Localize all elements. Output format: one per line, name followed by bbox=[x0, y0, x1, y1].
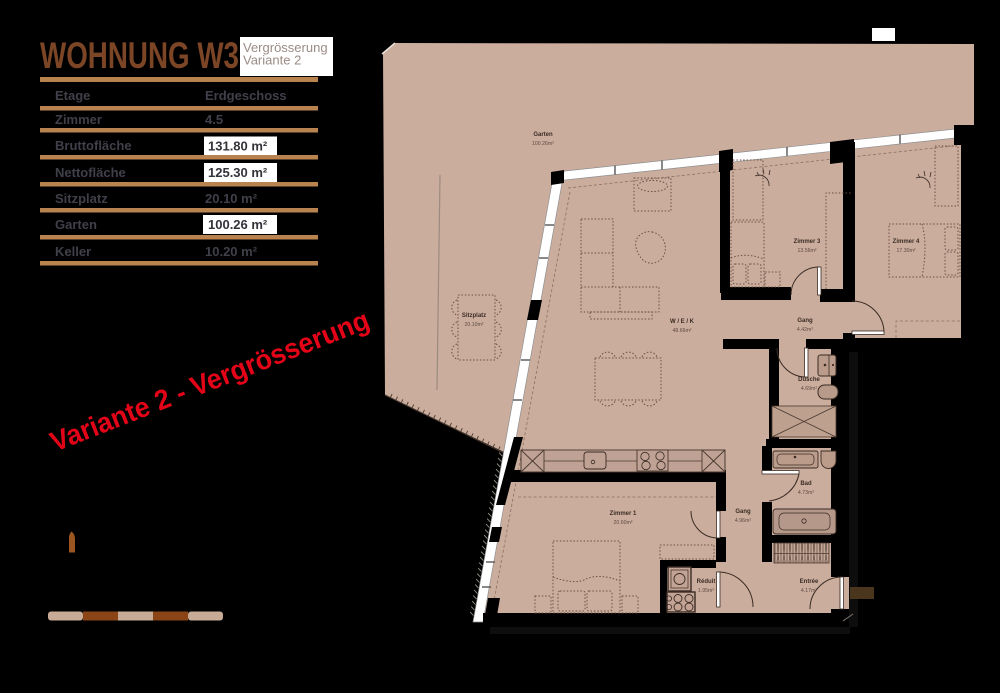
svg-text:4.42m²: 4.42m² bbox=[797, 327, 813, 333]
svg-text:WOHNUNG W3: WOHNUNG W3 bbox=[40, 35, 239, 76]
svg-text:4.73m²: 4.73m² bbox=[798, 490, 814, 496]
svg-text:Zimmer 1: Zimmer 1 bbox=[610, 511, 637, 517]
svg-text:Zimmer 3: Zimmer 3 bbox=[794, 239, 821, 245]
svg-text:100.26 m²: 100.26 m² bbox=[208, 217, 268, 232]
svg-text:Nettofläche: Nettofläche bbox=[55, 165, 126, 180]
svg-text:4.96m²: 4.96m² bbox=[735, 518, 751, 524]
svg-text:Zimmer: Zimmer bbox=[55, 112, 102, 127]
svg-text:Entrée: Entrée bbox=[800, 579, 819, 585]
svg-text:48.66m²: 48.66m² bbox=[672, 328, 691, 334]
svg-text:Dusche: Dusche bbox=[798, 377, 820, 383]
svg-text:17.30m²: 17.30m² bbox=[896, 248, 915, 254]
svg-text:20.10m²: 20.10m² bbox=[464, 322, 483, 328]
svg-text:Gang: Gang bbox=[797, 318, 813, 324]
svg-text:4.69m²: 4.69m² bbox=[801, 386, 817, 392]
svg-text:Variante 2: Variante 2 bbox=[243, 53, 301, 68]
svg-text:Gang: Gang bbox=[735, 509, 751, 515]
svg-text:100.26m²: 100.26m² bbox=[532, 141, 554, 147]
svg-text:4.5: 4.5 bbox=[205, 112, 223, 127]
svg-text:131.80 m²: 131.80 m² bbox=[208, 139, 268, 154]
svg-text:W / E / K: W / E / K bbox=[670, 319, 695, 325]
svg-text:Etage: Etage bbox=[55, 88, 90, 103]
svg-text:13.56m²: 13.56m² bbox=[797, 248, 816, 254]
svg-text:Sitzplatz: Sitzplatz bbox=[55, 191, 108, 206]
svg-text:Garten: Garten bbox=[533, 132, 553, 138]
svg-text:125.30 m²: 125.30 m² bbox=[208, 165, 268, 180]
svg-text:Garten: Garten bbox=[55, 217, 97, 232]
svg-text:Sitzplatz: Sitzplatz bbox=[462, 313, 486, 319]
svg-text:Réduit: Réduit bbox=[697, 579, 716, 585]
svg-text:1.95m²: 1.95m² bbox=[698, 588, 714, 594]
svg-text:Zimmer 4: Zimmer 4 bbox=[893, 239, 920, 245]
svg-text:20.60m²: 20.60m² bbox=[613, 520, 632, 526]
svg-text:20.10 m²: 20.10 m² bbox=[205, 191, 258, 206]
svg-text:4.17m²: 4.17m² bbox=[801, 588, 817, 594]
svg-text:Erdgeschoss: Erdgeschoss bbox=[205, 88, 287, 103]
svg-text:Bruttofläche: Bruttofläche bbox=[55, 138, 132, 153]
svg-text:Keller: Keller bbox=[55, 244, 91, 259]
svg-text:10.20 m²: 10.20 m² bbox=[205, 244, 258, 259]
svg-text:Bad: Bad bbox=[800, 481, 812, 487]
